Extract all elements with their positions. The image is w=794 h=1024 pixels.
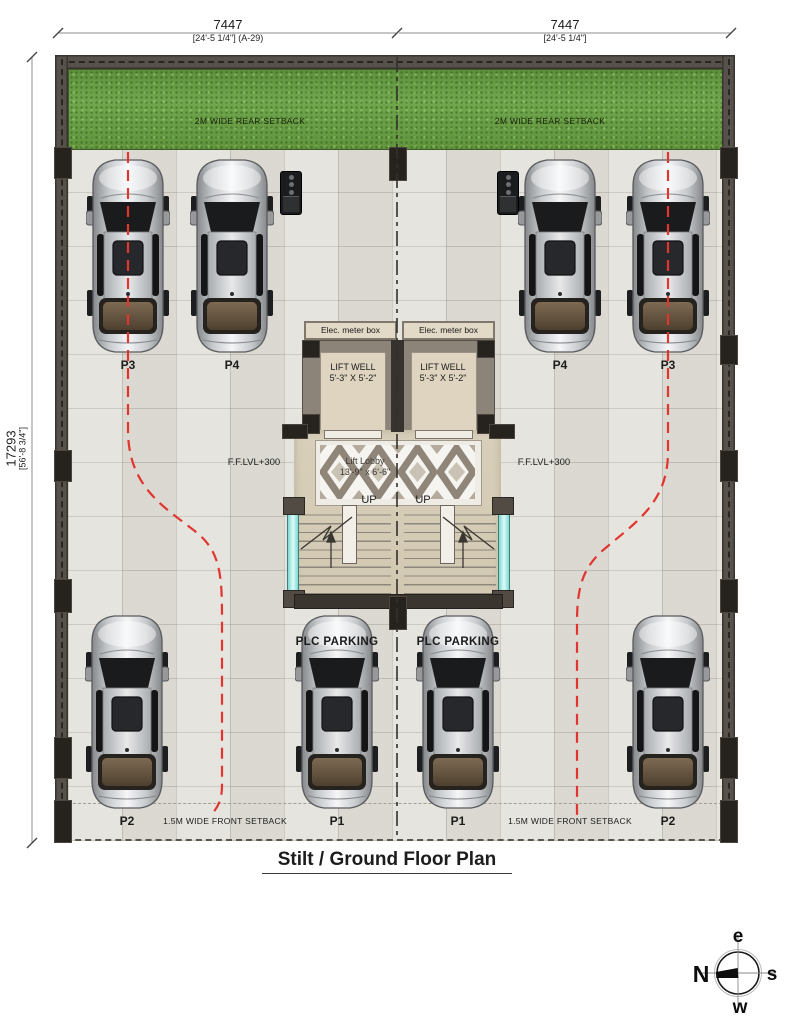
electrical-panel-left bbox=[280, 171, 302, 215]
lobby-label: Lift Lobby 13'-9" x 6'-6" bbox=[305, 456, 425, 478]
dimension-left-sub: [56'-8 3/4"] bbox=[18, 389, 28, 509]
wall-rear bbox=[55, 55, 735, 69]
wall-pier bbox=[720, 579, 738, 613]
elec-meter-box-right: Elec. meter box bbox=[402, 321, 495, 340]
electrical-panel-right bbox=[497, 171, 519, 215]
center-pier-top bbox=[389, 147, 407, 181]
lift-well-right-line2: 5'-3" X 5'-2" bbox=[412, 373, 474, 384]
compass-e-label: e bbox=[733, 926, 744, 947]
slot-label: P3 bbox=[638, 358, 698, 372]
wall-pier bbox=[54, 800, 72, 843]
lift-door-sill-right bbox=[415, 430, 473, 439]
lift-shaft-mullion bbox=[391, 340, 404, 432]
slot-label: P2 bbox=[97, 814, 157, 828]
rear-setback-grass bbox=[68, 69, 724, 150]
elec-meter-box-left: Elec. meter box bbox=[304, 321, 397, 340]
slot-label: P1 bbox=[307, 814, 367, 828]
car-p2-bottom-right bbox=[626, 612, 710, 812]
dimension-left: 17293 [56'-8 3/4"] bbox=[5, 389, 28, 509]
shaft-pier bbox=[477, 340, 495, 358]
lift-well-right-line1: LIFT WELL bbox=[412, 362, 474, 373]
shaft-pier bbox=[302, 340, 320, 358]
wall-pier bbox=[720, 335, 738, 365]
compass-w-label: w bbox=[732, 997, 748, 1014]
stair-slot-right bbox=[440, 505, 455, 564]
dimension-top-left-value: 7447 bbox=[148, 18, 308, 31]
stair-pier bbox=[492, 497, 514, 515]
lobby-line2: 13'-9" x 6'-6" bbox=[305, 467, 425, 478]
wall-pier bbox=[54, 579, 72, 613]
up-right-label: UP bbox=[411, 495, 435, 506]
compass-needle bbox=[716, 968, 739, 980]
slot-label: P2 bbox=[638, 814, 698, 828]
car-p3-top-left bbox=[86, 156, 170, 356]
rear-setback-left-label: 2M WIDE REAR SETBACK bbox=[180, 116, 320, 126]
wall-pier bbox=[54, 147, 72, 179]
lift-door-sill-left bbox=[324, 430, 382, 439]
dimension-top-right-sub: [24'-5 1/4"] bbox=[485, 33, 645, 43]
stair-slot-left bbox=[342, 505, 357, 564]
slot-label: P1 bbox=[428, 814, 488, 828]
slot-label: P4 bbox=[530, 358, 590, 372]
dimension-left-value: 17293 bbox=[5, 389, 18, 509]
lobby-line1: Lift Lobby bbox=[305, 456, 425, 467]
front-setback-left-label: 1.5M WIDE FRONT SETBACK bbox=[157, 816, 293, 826]
slot-label: P3 bbox=[98, 358, 158, 372]
lobby-pier bbox=[489, 424, 515, 439]
ffl-left-label: F.F.LVL+300 bbox=[210, 457, 298, 468]
car-p3-top-right bbox=[626, 156, 710, 356]
lobby-pier bbox=[282, 424, 308, 439]
car-p4-top-right bbox=[518, 156, 602, 356]
lift-well-left-label: LIFT WELL 5'-3" X 5'-2" bbox=[322, 362, 384, 384]
center-pier-bottom bbox=[389, 596, 407, 630]
car-p2-bottom-left bbox=[85, 612, 169, 812]
compass-s-label: s bbox=[767, 964, 778, 985]
compass-n-label: N bbox=[693, 961, 710, 987]
front-setback-right-label: 1.5M WIDE FRONT SETBACK bbox=[502, 816, 638, 826]
lift-well-left-line2: 5'-3" X 5'-2" bbox=[322, 373, 384, 384]
wall-pier bbox=[54, 450, 72, 482]
plc-parking-left-label: PLC PARKING bbox=[287, 636, 387, 648]
lift-well-right-label: LIFT WELL 5'-3" X 5'-2" bbox=[412, 362, 474, 384]
wall-pier bbox=[54, 737, 72, 779]
rear-setback-right-label: 2M WIDE REAR SETBACK bbox=[480, 116, 620, 126]
compass-icon: e N s w bbox=[692, 922, 784, 1014]
wall-pier bbox=[720, 147, 738, 179]
dimension-top-right-value: 7447 bbox=[485, 18, 645, 31]
wall-pier bbox=[720, 737, 738, 779]
stair-glass-right bbox=[498, 512, 510, 594]
wall-pier bbox=[720, 800, 738, 843]
lift-well-left-line1: LIFT WELL bbox=[322, 362, 384, 373]
floor-plan-canvas: 7447 [24'-5 1/4"] (A-29) 7447 [24'-5 1/4… bbox=[0, 0, 794, 1024]
dimension-top-left-sub: [24'-5 1/4"] (A-29) bbox=[128, 33, 328, 43]
front-boundary-line bbox=[55, 839, 735, 841]
wall-pier bbox=[720, 450, 738, 482]
plc-parking-right-label: PLC PARKING bbox=[408, 636, 508, 648]
stair-pier bbox=[283, 497, 305, 515]
stair-glass-left bbox=[287, 512, 299, 594]
car-p4-top-left bbox=[190, 156, 274, 356]
ffl-right-label: F.F.LVL+300 bbox=[500, 457, 588, 468]
plan-title: Stilt / Ground Floor Plan bbox=[262, 849, 512, 874]
up-left-label: UP bbox=[357, 495, 381, 506]
slot-label: P4 bbox=[202, 358, 262, 372]
